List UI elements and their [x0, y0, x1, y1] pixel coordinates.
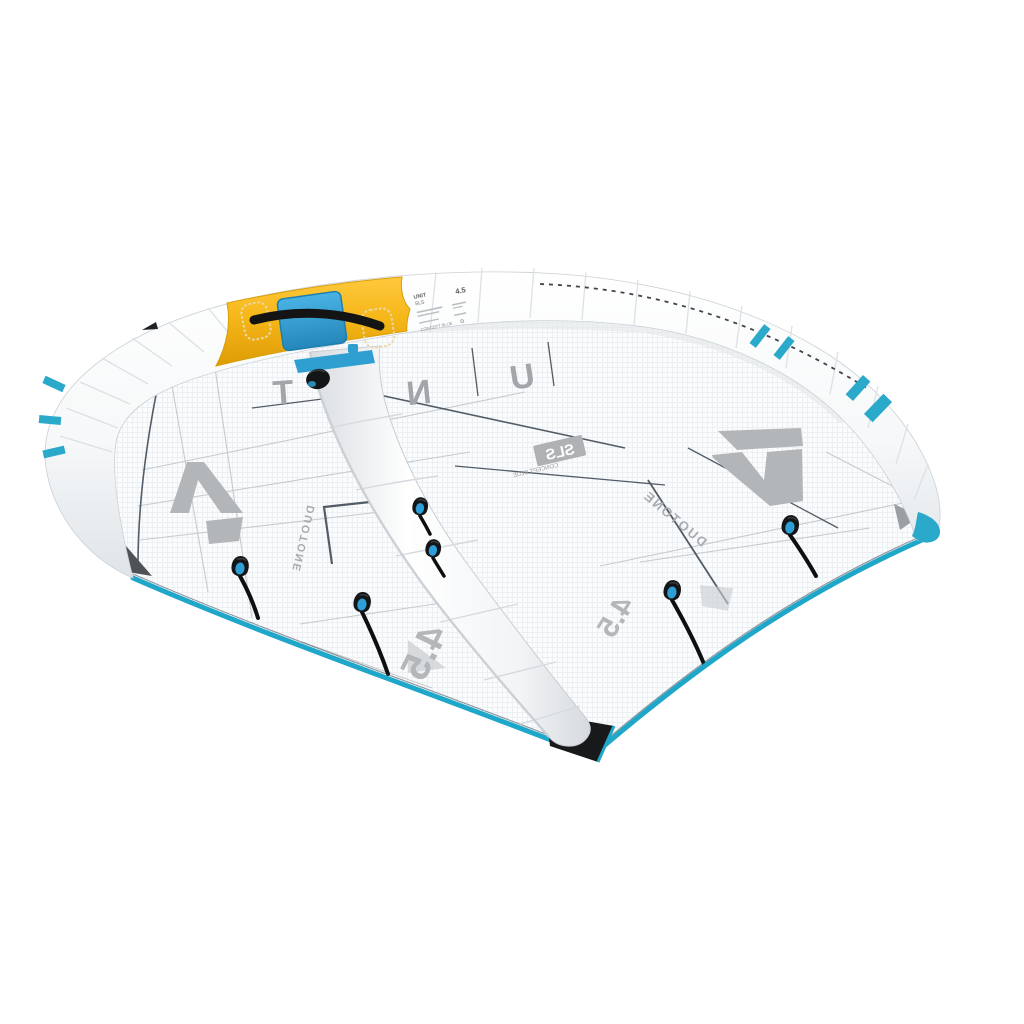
- wing-illustration: T N U SLS CONCEPT BLUE DUOTONE DUOTONE: [0, 0, 1024, 1024]
- letter-n-text: N: [405, 373, 433, 413]
- brand-letter-t: T: [271, 373, 295, 412]
- letter-t-text: T: [271, 373, 295, 412]
- cyan-patch: [277, 291, 348, 351]
- product-image: T N U SLS CONCEPT BLUE DUOTONE DUOTONE: [0, 0, 1024, 1024]
- brand-letter-n: N: [405, 373, 433, 413]
